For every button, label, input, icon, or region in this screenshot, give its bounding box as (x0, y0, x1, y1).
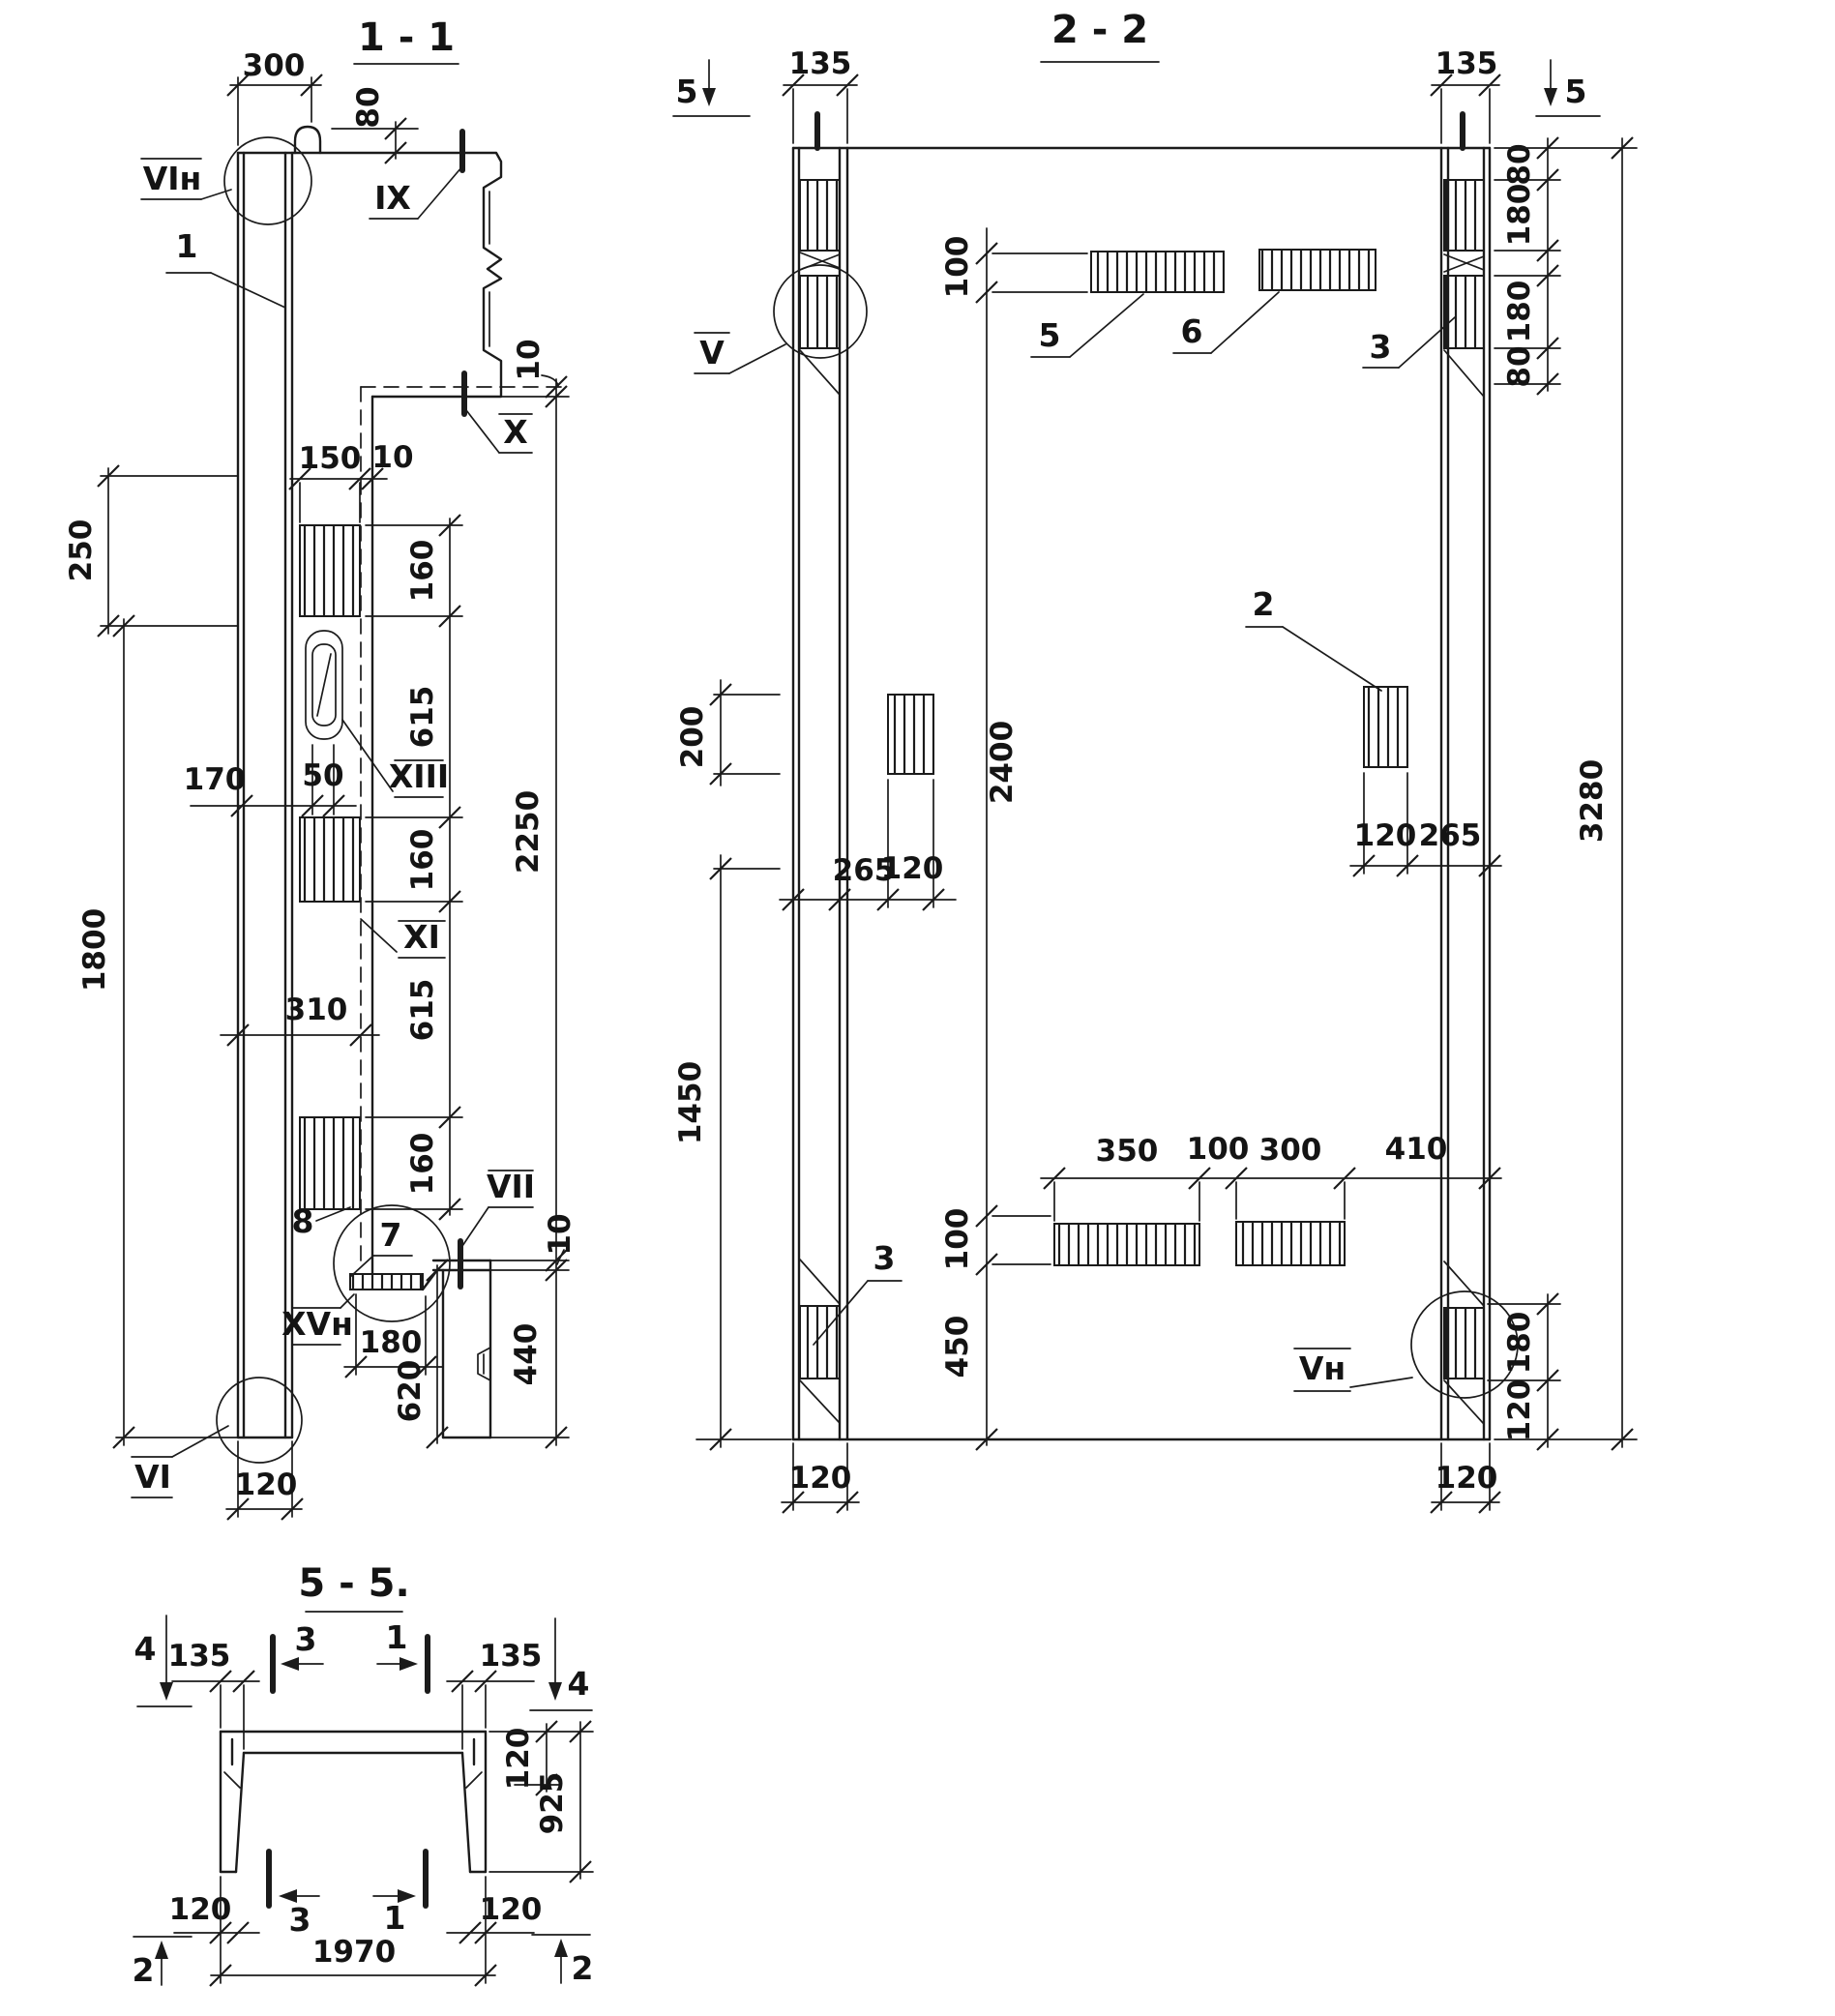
dim-150-10: 150 10 (289, 440, 414, 522)
dim-120-br-text: 120 (1435, 1461, 1498, 1496)
dim-120-rb-text: 120 (1502, 1379, 1537, 1442)
right-column-block-2 (1444, 276, 1484, 348)
cut-marker-5-right: 5 (1536, 60, 1600, 116)
mid-block-right (1364, 687, 1407, 767)
dim-615a-text: 615 (405, 686, 440, 749)
top-bar-5 (1091, 252, 1224, 292)
dim-10-top: 10 (512, 339, 558, 386)
part-8-text: 8 (292, 1202, 314, 1240)
dim-120-11: 120 (226, 1441, 303, 1520)
bottom-bar-left (1054, 1224, 1199, 1265)
dim-250-text: 250 (64, 519, 99, 582)
part-7-text: 7 (380, 1216, 402, 1254)
part-3-bottom-left-label: 3 (814, 1239, 902, 1345)
part-1-text: 1 (176, 227, 198, 265)
dim-chain-right-bottom: 180 120 (1488, 1293, 1560, 1450)
dim-120-265-right: 120 265 (1350, 773, 1501, 876)
part-2-text: 2 (1253, 585, 1275, 623)
dim-160c-text: 160 (405, 1133, 440, 1196)
dim-120-t55-text: 120 (501, 1728, 536, 1791)
cut-marker-1-top: 1 (377, 1618, 428, 1691)
section-5-5-title: 5 - 5. (298, 1561, 409, 1606)
dim-135-right-text: 135 (1435, 46, 1498, 81)
bottom-step-hatch (350, 1274, 423, 1290)
dim-160b-text: 160 (405, 829, 440, 892)
left-column-block-2 (800, 276, 840, 348)
dim-10-bottom: 10 (543, 1213, 577, 1264)
dim-310-text: 310 (285, 993, 348, 1027)
marker-vi: VI (132, 1426, 228, 1497)
dim-10-bottom-text: 10 (543, 1213, 577, 1255)
cut-2-right-text: 2 (572, 1949, 594, 1987)
mid-block-left (888, 695, 933, 774)
cut-marker-2-left: 2 (133, 1937, 192, 1989)
cut-1-bottom-text: 1 (384, 1899, 406, 1937)
cut-marker-2-right: 2 (532, 1935, 593, 1987)
right-column-block-1 (1444, 180, 1484, 251)
dim-180-rt2-text: 180 (1502, 281, 1537, 343)
part-7-label: 7 (350, 1216, 412, 1277)
dim-chain-160-615: 160 615 160 615 160 (366, 515, 462, 1220)
dim-100-top-text: 100 (940, 236, 975, 299)
section-2-2-title: 2 - 2 (1051, 8, 1148, 52)
dim-265-120-left: 265 120 (780, 780, 956, 910)
dim-180-rb-text: 180 (1502, 1312, 1537, 1375)
marker-vi-n-text: VIн (143, 160, 202, 197)
left-column-block-1 (800, 180, 840, 251)
embedded-plate-middle (300, 817, 360, 902)
part-2-label: 2 (1246, 585, 1381, 691)
part-5-label: 5 (1031, 294, 1143, 357)
part-6-text: 6 (1181, 312, 1203, 350)
cut-2-left-text: 2 (133, 1951, 155, 1989)
marker-vii-text: VII (487, 1168, 535, 1205)
dim-80-rt1-text: 80 (1502, 143, 1537, 185)
part-1-label: 1 (166, 227, 285, 308)
dim-chain-right-top: 80 180 180 80 (1495, 137, 1560, 395)
dim-120-bottom-left: 120 (782, 1443, 859, 1513)
dim-200: 200 (675, 680, 780, 786)
dim-135-l55-text: 135 (168, 1639, 231, 1674)
dim-300-22-text: 300 (1259, 1133, 1322, 1168)
section-5-5: 5 - 5. 4 4 135 135 (133, 1561, 594, 1989)
section-1-1: 1 - 1 300 (64, 15, 577, 1520)
part-3-bl-text: 3 (873, 1239, 896, 1277)
cut-4-right-text: 4 (568, 1665, 590, 1703)
dim-chain-middle: 100 2400 100 450 (940, 228, 1087, 1450)
dim-100-row-text: 100 (1187, 1132, 1250, 1167)
dim-350-100-300-410: 350 100 300 410 (1041, 1132, 1501, 1221)
marker-vi-text: VI (134, 1458, 171, 1496)
cut-1-top-text: 1 (386, 1618, 408, 1656)
dim-120-bottom-right: 120 (1431, 1443, 1500, 1513)
dim-120-bottom-right-55: 120 (447, 1892, 542, 1943)
dim-120-midright-text: 120 (1354, 818, 1417, 853)
dim-410-text: 410 (1385, 1132, 1448, 1167)
dim-170-50: 170 50 (184, 745, 356, 816)
dim-925-text: 925 (535, 1772, 570, 1835)
dim-2250-text: 2250 (511, 790, 546, 874)
marker-v-n: Vн (1294, 1349, 1412, 1391)
marker-ix: IX (370, 132, 462, 219)
marker-v-text: V (699, 334, 725, 371)
marker-x-text: X (503, 413, 527, 451)
marker-xiii-text: XIII (389, 757, 449, 795)
dim-180-rt1-text: 180 (1502, 184, 1537, 247)
part-5-text: 5 (1039, 316, 1061, 354)
bottom-bar-right (1236, 1222, 1345, 1265)
dim-10-top-text: 10 (512, 339, 547, 380)
cut-5-left-text: 5 (676, 73, 698, 110)
dim-120-bl-text: 120 (789, 1461, 852, 1496)
dim-1800: 1800 (77, 615, 238, 1448)
cut-marker-1-bottom: 1 (373, 1852, 426, 1937)
drawing-sheet: 1 - 1 300 (0, 0, 1835, 2016)
dim-620-text: 620 (393, 1360, 428, 1423)
part-6-label: 6 (1173, 292, 1279, 353)
dim-450-text: 450 (940, 1316, 975, 1379)
dim-300: 300 (227, 48, 322, 145)
dim-120-bl55-text: 120 (169, 1892, 232, 1927)
part-3-tr-text: 3 (1370, 328, 1392, 366)
dim-1800-text: 1800 (77, 908, 112, 992)
dim-120-midleft-text: 120 (881, 851, 944, 886)
embedded-plate-top (300, 525, 360, 616)
marker-x: X (464, 373, 532, 453)
marker-v-n-text: Vн (1299, 1349, 1346, 1387)
dim-170-text: 170 (184, 762, 247, 797)
technical-drawing: 1 - 1 300 (0, 0, 1835, 2016)
cut-3-bottom-text: 3 (289, 1901, 311, 1939)
section-1-1-title: 1 - 1 (358, 15, 455, 60)
section-2-2: 2 - 2 5 5 (673, 8, 1637, 1513)
cut-marker-3-bottom: 3 (269, 1852, 319, 1939)
dim-150-text: 150 (299, 441, 362, 476)
cut-3-top-text: 3 (295, 1620, 317, 1658)
dim-120-br55-text: 120 (480, 1892, 543, 1927)
dim-3280-text: 3280 (1575, 759, 1610, 843)
dim-350-text: 350 (1096, 1134, 1159, 1169)
marker-v: V (695, 333, 785, 373)
cut-marker-3-top: 3 (273, 1620, 323, 1691)
left-column-block-3 (800, 1306, 840, 1379)
dim-100-bottom-text: 100 (940, 1208, 975, 1271)
dim-440-text: 440 (509, 1323, 544, 1386)
dim-615b-text: 615 (405, 979, 440, 1042)
dim-265-right-text: 265 (1419, 818, 1482, 853)
dim-80-text: 80 (351, 86, 386, 128)
top-bar-6 (1259, 250, 1376, 290)
lifting-loop (295, 127, 320, 153)
dim-50-text: 50 (302, 758, 343, 793)
dim-250: 250 (64, 465, 238, 637)
right-column-block-3 (1444, 1308, 1484, 1379)
dim-180-11-text: 180 (360, 1325, 423, 1360)
dim-10b-text: 10 (371, 440, 413, 475)
dim-160a-text: 160 (405, 540, 440, 603)
slot-detail (306, 631, 342, 739)
dim-300-text: 300 (243, 48, 306, 83)
marker-vii: VII (460, 1168, 535, 1287)
cut-4-left-text: 4 (134, 1630, 157, 1668)
dim-200-text: 200 (675, 706, 710, 769)
marker-xv-n-text: XVн (281, 1305, 353, 1343)
detail-circle-vi (217, 1378, 302, 1463)
marker-xi-text: XI (403, 918, 440, 956)
dim-1970-text: 1970 (312, 1935, 396, 1970)
dim-135-r55-text: 135 (480, 1639, 543, 1674)
embedded-plate-bottom (300, 1117, 360, 1209)
marker-vi-n: VIн (141, 159, 231, 199)
dim-135-left-text: 135 (789, 46, 852, 81)
dim-1450: 1450 (673, 855, 791, 1450)
dim-chain-2250-440: 2250 440 (490, 376, 569, 1448)
dim-120-11-text: 120 (235, 1468, 298, 1502)
cut-5-right-text: 5 (1565, 73, 1587, 110)
dim-80-rt2-text: 80 (1502, 345, 1537, 387)
channel-outline-5-5 (221, 1732, 486, 1872)
dim-120-bottom-left-55: 120 (169, 1892, 259, 1943)
dim-1970: 1970 (210, 1877, 496, 1986)
cut-marker-5-left: 5 (673, 60, 750, 116)
dim-2400-text: 2400 (985, 721, 1020, 804)
dim-1450-text: 1450 (673, 1061, 708, 1144)
marker-ix-text: IX (374, 179, 411, 217)
